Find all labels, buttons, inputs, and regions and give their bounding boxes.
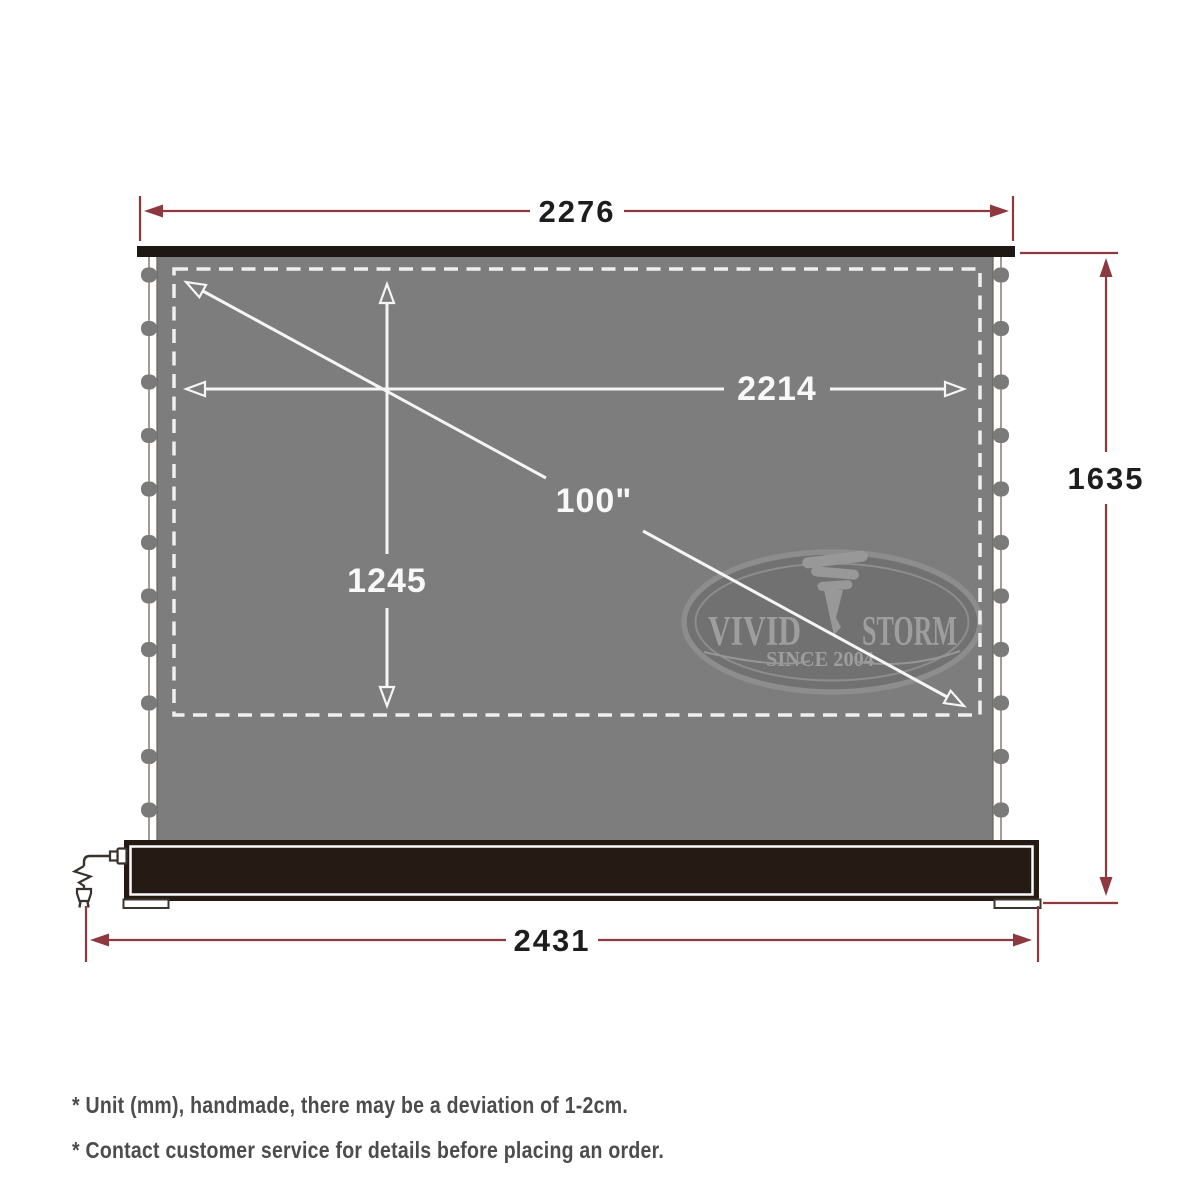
plug-socket-tip [110, 852, 118, 861]
tension-tab [141, 268, 157, 283]
top-width-value: 2276 [539, 194, 616, 229]
arrowhead-up [1100, 258, 1113, 277]
tension-tab [141, 482, 157, 497]
arrowhead-right [990, 205, 1009, 218]
tension-tab [141, 375, 157, 390]
tension-tab [993, 321, 1009, 336]
footnote-unit: * Unit (mm), handmade, there may be a de… [72, 1092, 628, 1118]
tension-tab [141, 696, 157, 711]
tension-tab [993, 268, 1009, 283]
tension-tab [993, 642, 1009, 657]
tension-tab [141, 803, 157, 818]
base-foot-right [995, 900, 1041, 909]
tension-tab [141, 321, 157, 336]
tension-tab [993, 803, 1009, 818]
tension-tab [141, 535, 157, 550]
power-cable [84, 856, 110, 866]
arrowhead-left [144, 205, 163, 218]
viewing-width-value: 2214 [737, 370, 817, 408]
tension-tab [993, 749, 1009, 764]
base-width-value: 2431 [514, 923, 591, 958]
tension-tab [993, 428, 1009, 443]
tension-tab [993, 589, 1009, 604]
plug-socket-connector [118, 849, 127, 864]
arrowhead-left [90, 934, 109, 947]
diagram-canvas: VIVID STORM SINCE 2004 2214 1245 100" [0, 0, 1200, 1200]
base-body [125, 841, 1038, 900]
tension-tab [993, 375, 1009, 390]
diagonal-size-value: 100" [556, 482, 633, 520]
arrowhead-down [1100, 877, 1113, 896]
arrowhead-right [1013, 934, 1032, 947]
power-plug-icon [75, 849, 127, 908]
tension-tab [993, 696, 1009, 711]
screen-assembly [137, 246, 1015, 841]
logo-text-storm: STORM [862, 609, 957, 655]
cable-break-symbol [75, 866, 91, 889]
tension-tab [141, 428, 157, 443]
footnote-contact: * Contact customer service for details b… [72, 1137, 664, 1163]
tension-tab [141, 642, 157, 657]
tension-tab [141, 589, 157, 604]
vividstorm-logo: VIVID STORM SINCE 2004 [684, 550, 980, 692]
logo-tagline: SINCE 2004 [766, 647, 874, 671]
top-slat-bar [137, 246, 1015, 257]
screen-dimension-diagram: VIVID STORM SINCE 2004 2214 1245 100" [0, 0, 1200, 1200]
plug-body [77, 889, 91, 901]
tension-tab [141, 749, 157, 764]
tension-tab [993, 535, 1009, 550]
screen-surface [157, 251, 993, 841]
base-foot-left [124, 900, 169, 909]
tension-tab [993, 482, 1009, 497]
total-height-value: 1635 [1068, 461, 1145, 496]
viewing-height-value: 1245 [347, 562, 427, 600]
base-housing [124, 841, 1041, 908]
